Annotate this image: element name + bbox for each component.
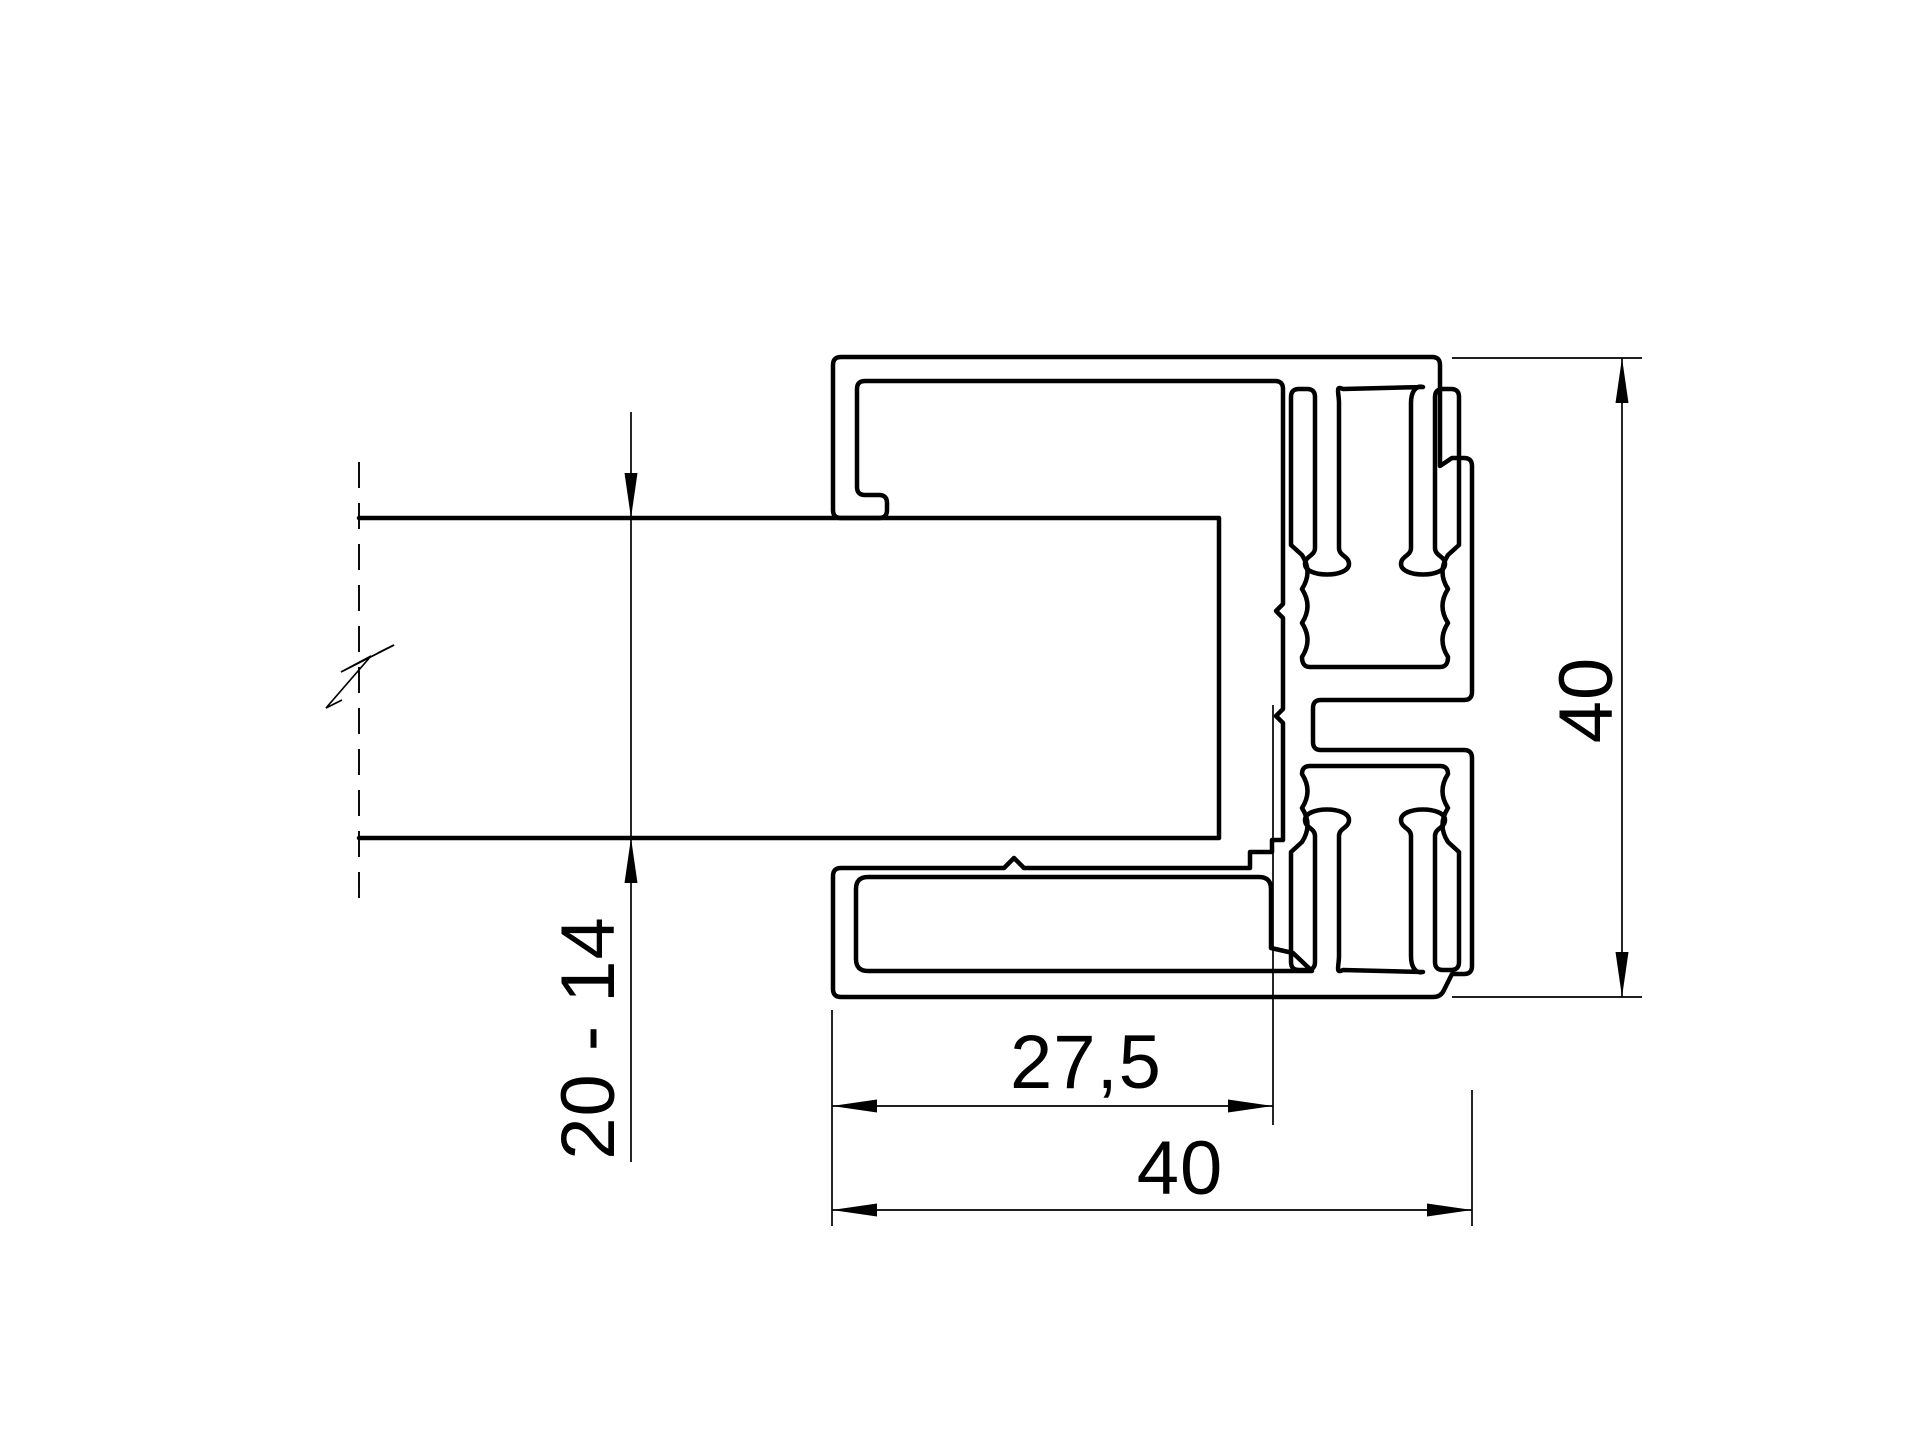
dimension-glass-thickness: 20 - 14 (546, 412, 638, 1162)
arrow-left-overall-width (832, 1204, 877, 1217)
dim-label-overall-height: 40 (1544, 657, 1629, 744)
clamp-profile (833, 357, 1472, 997)
arrow-down-overall-height (1616, 952, 1629, 997)
dim-label-inner-depth: 27,5 (1010, 1020, 1162, 1105)
arrow-right-overall-width (1427, 1204, 1472, 1217)
arrow-up-overall-height (1616, 358, 1629, 403)
arrow-left-inner-depth (832, 1100, 877, 1113)
glass-break-symbol (326, 645, 394, 708)
arrow-down-glass-top (625, 473, 638, 518)
dimension-overall-width: 40 (832, 1090, 1472, 1226)
dim-label-overall-width: 40 (1137, 1126, 1224, 1211)
upper-screw-chamber (1291, 387, 1459, 667)
profile-cross-section-drawing: 20 - 14 27,5 40 40 (0, 0, 1918, 1440)
glass-outline (359, 518, 1219, 838)
arrow-up-glass-bottom (625, 838, 638, 883)
lower-screw-chamber (1291, 766, 1459, 972)
dim-label-glass-thickness: 20 - 14 (546, 916, 631, 1160)
drawing-canvas: 20 - 14 27,5 40 40 (0, 0, 1918, 1440)
arrow-right-inner-depth (1228, 1100, 1273, 1113)
dimension-overall-height: 40 (1452, 358, 1642, 997)
profile-outer-boundary (833, 357, 1472, 997)
glass-panel (326, 462, 1219, 900)
bottom-flange-cavity (856, 877, 1312, 971)
